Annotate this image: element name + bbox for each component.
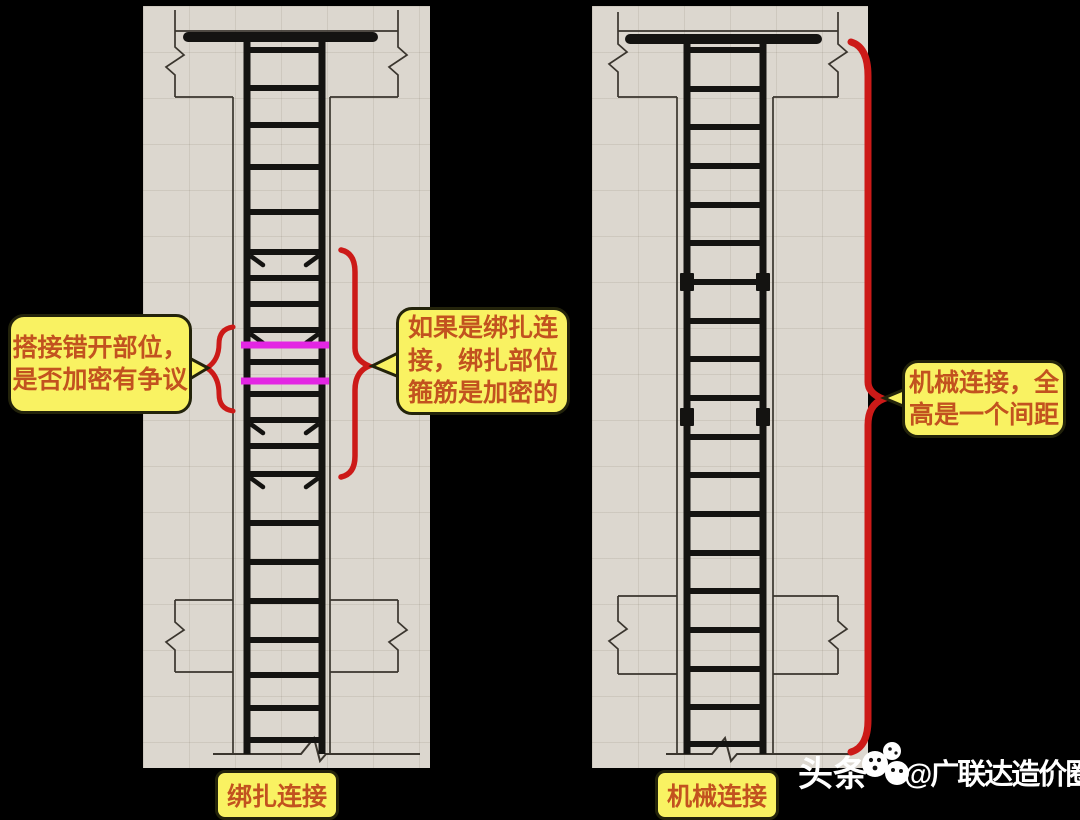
callout-line: 箍筋是加密的 bbox=[408, 377, 558, 410]
watermark-handle: @广联达造价圈 bbox=[904, 751, 1080, 793]
caption-mechanical-connection: 机械连接 bbox=[655, 770, 779, 820]
callout-mechanical-connection: 机械连接，全 高是一个间距 bbox=[902, 360, 1066, 438]
right-diagram-panel bbox=[592, 6, 868, 768]
diagram-canvas: 搭接错开部位， 是否加密有争议 如果是绑扎连 接，绑扎部位 箍筋是加密的 机械连… bbox=[0, 0, 1080, 818]
mechanical-splice-column-drawing bbox=[592, 6, 868, 768]
callout-line: 接，绑扎部位 bbox=[408, 345, 558, 378]
callout-line: 搭接错开部位， bbox=[12, 332, 187, 365]
callout-line: 高是一个间距 bbox=[909, 399, 1059, 432]
callout-line: 如果是绑扎连 bbox=[408, 312, 558, 345]
callout-line: 机械连接，全 bbox=[909, 367, 1059, 400]
caption-tied-connection: 绑扎连接 bbox=[215, 770, 339, 820]
callout-tied-connection: 如果是绑扎连 接，绑扎部位 箍筋是加密的 bbox=[396, 307, 570, 415]
watermark-prefix: 头条 bbox=[798, 746, 868, 797]
callout-lap-zone: 搭接错开部位， 是否加密有争议 bbox=[8, 314, 192, 414]
callout-line: 是否加密有争议 bbox=[12, 364, 187, 397]
watermark: 头条 @广联达造价圈 bbox=[798, 740, 1080, 803]
